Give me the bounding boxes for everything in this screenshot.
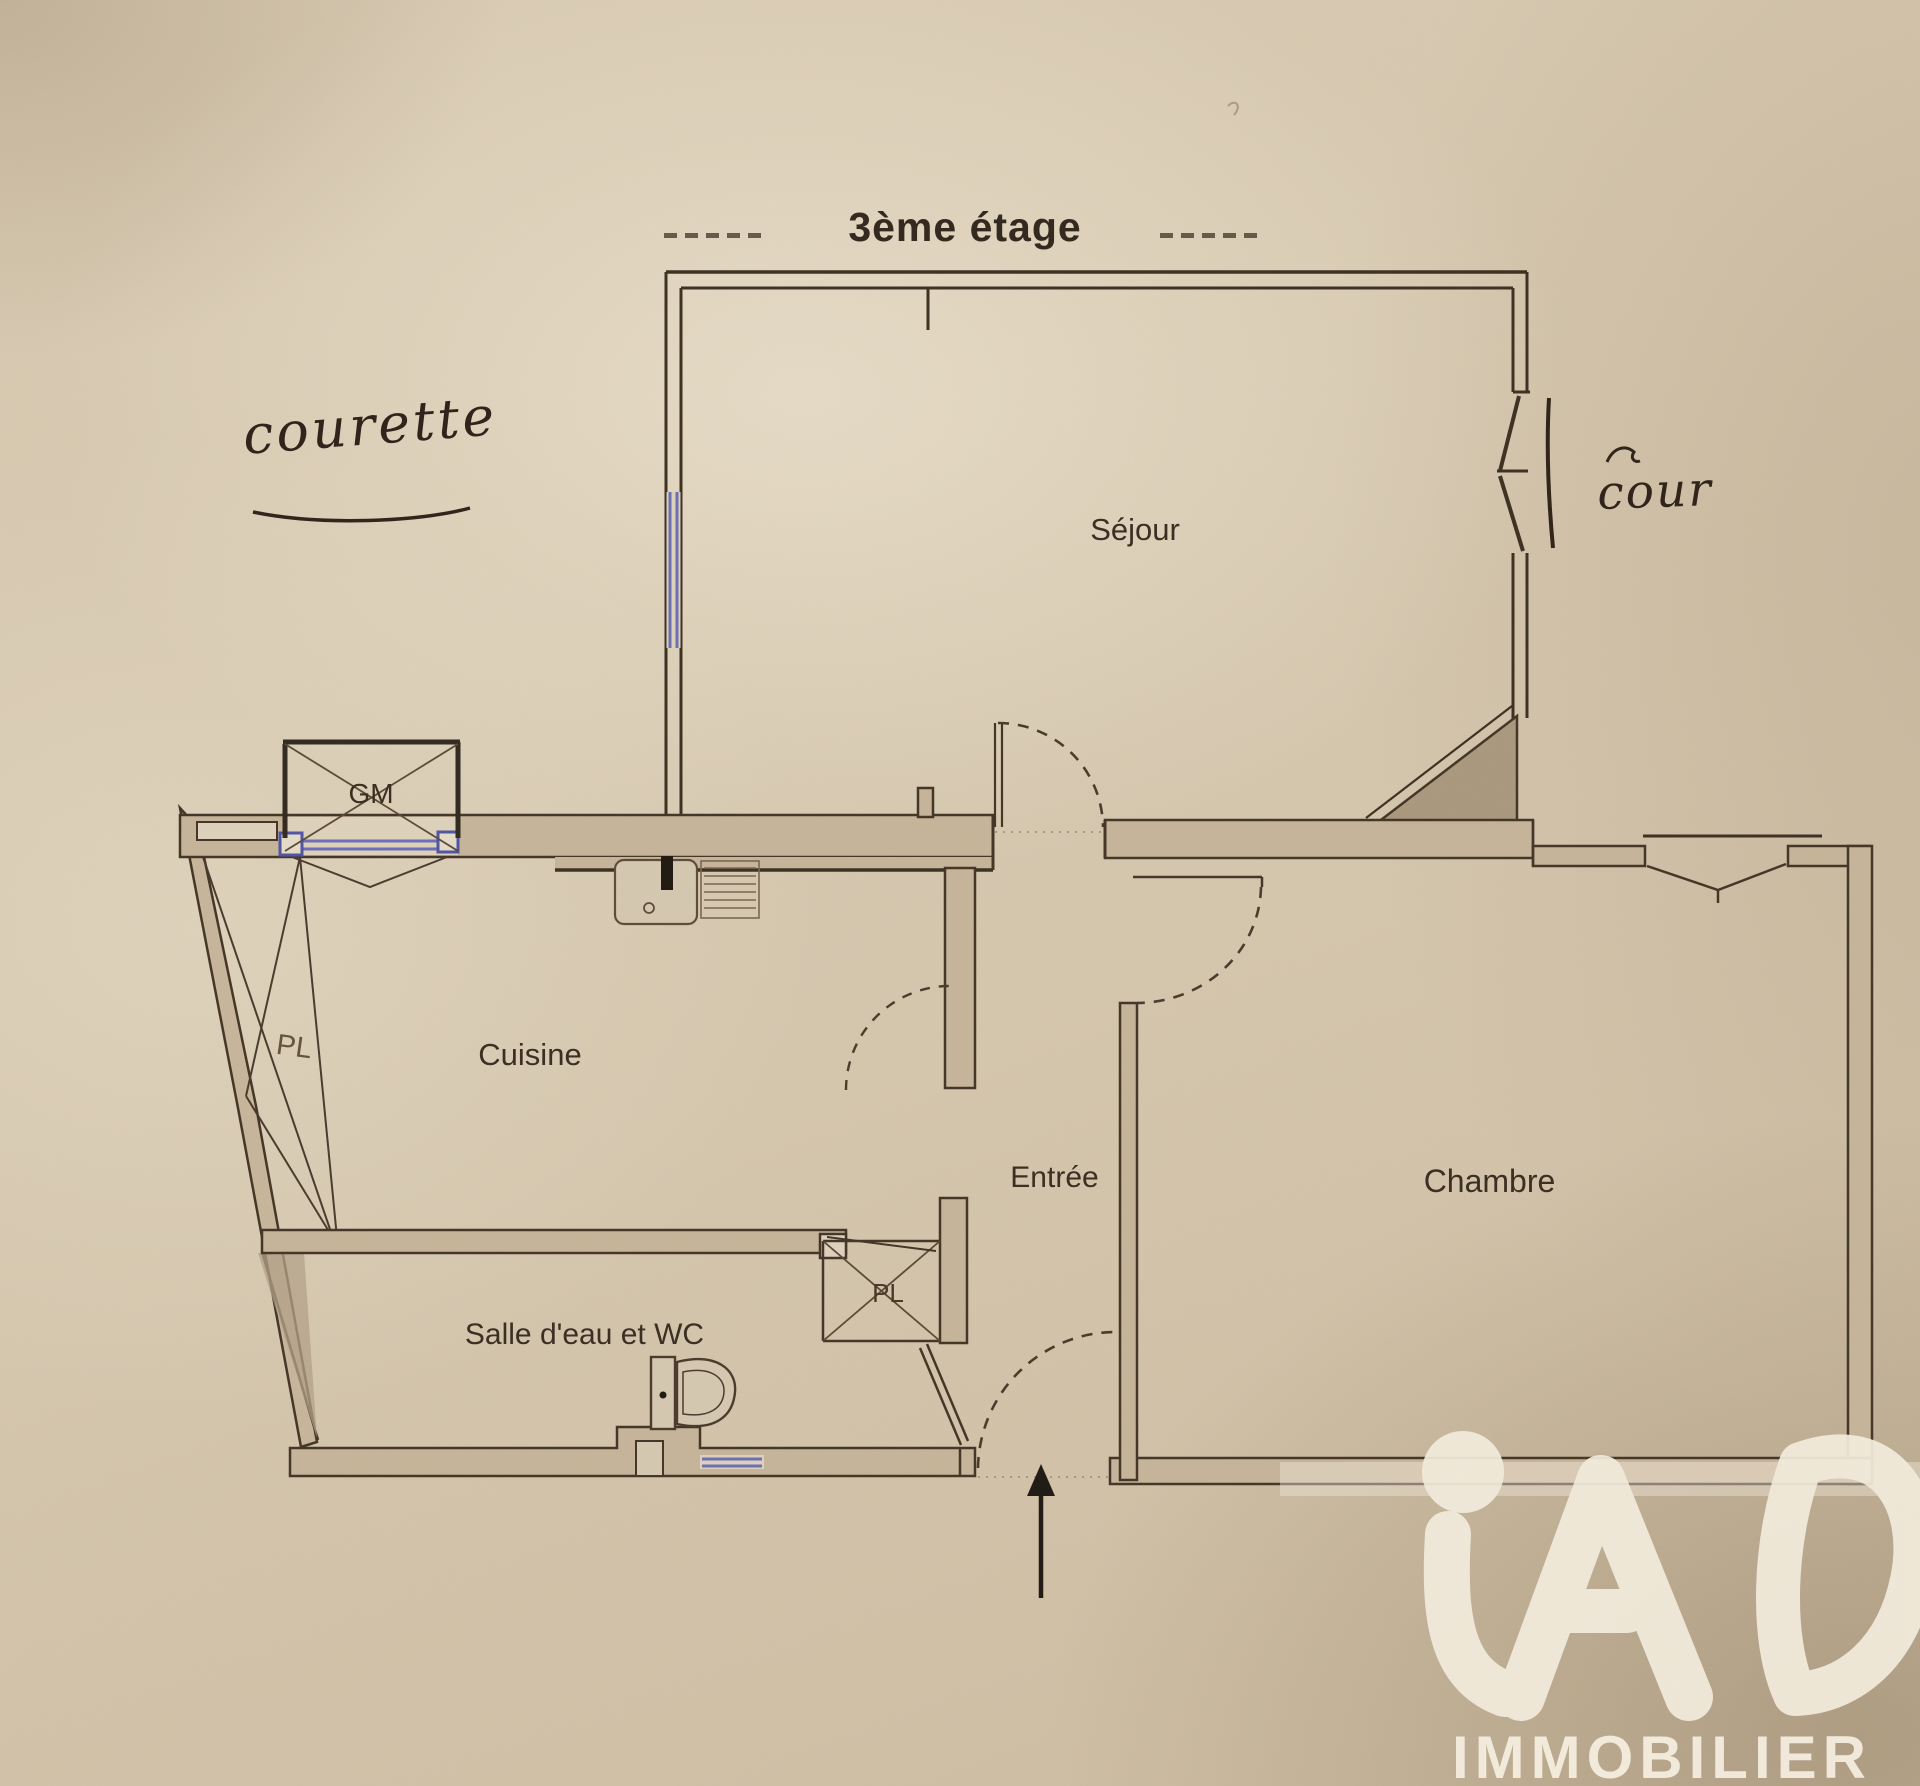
floorplan-photo: 3ème étage Séjour Cuisine Entrée Chambre… [0,0,1920,1786]
front-door [978,1332,1115,1477]
entry-arrow-icon [1027,1464,1055,1598]
pen-marks [253,103,1640,548]
closet-label-pl-entree: PL [857,1279,919,1308]
door-arc [998,723,1103,827]
sejour-walls [666,272,1530,826]
room-label-chambre: Chambre [1392,1164,1587,1199]
handwritten-cour: cour [1569,463,1741,521]
room-label-entree: Entrée [972,1161,1137,1194]
room-label-salle-eau: Salle d'eau et WC [437,1318,732,1351]
sejour-door [995,723,1103,832]
front-door-arc [978,1332,1115,1468]
room-label-cuisine: Cuisine [440,1038,620,1072]
door-leaf [995,723,1002,827]
sejour-corner-triangle [1373,716,1517,826]
floorplan-drawing [0,0,1920,1786]
cour-door-leaf [1500,476,1523,551]
cour-accent [1607,448,1640,462]
bathroom-door-leaf [920,1344,968,1445]
pl-entree-closet [823,1198,967,1343]
west-window [197,822,277,840]
pencil-mark [1228,103,1238,115]
chambre-door-arc [1137,887,1261,1003]
cour-wall-stroke [1548,398,1553,548]
divider-wall [262,1230,846,1258]
courette-underline [253,508,470,521]
bathroom-walls [290,1344,975,1476]
west-wall [180,808,318,1447]
kitchen-door-arc [846,986,950,1090]
title-dash-left [664,233,764,238]
cour-door-leaf [1500,396,1519,471]
closet-label-gm: GM [333,779,409,810]
room-label-sejour: Séjour [1055,513,1215,547]
floor-title: 3ème étage [770,205,1160,250]
title-dash-right [1160,233,1260,238]
kitchen-east-wall [846,868,975,1090]
sink-tap [661,856,673,890]
toilet-icon [651,1357,735,1429]
gm-window-leaves [292,857,447,887]
wall-stub [918,788,933,817]
chambre-window-leaves [1647,864,1786,890]
middle-walls [1105,820,1870,903]
